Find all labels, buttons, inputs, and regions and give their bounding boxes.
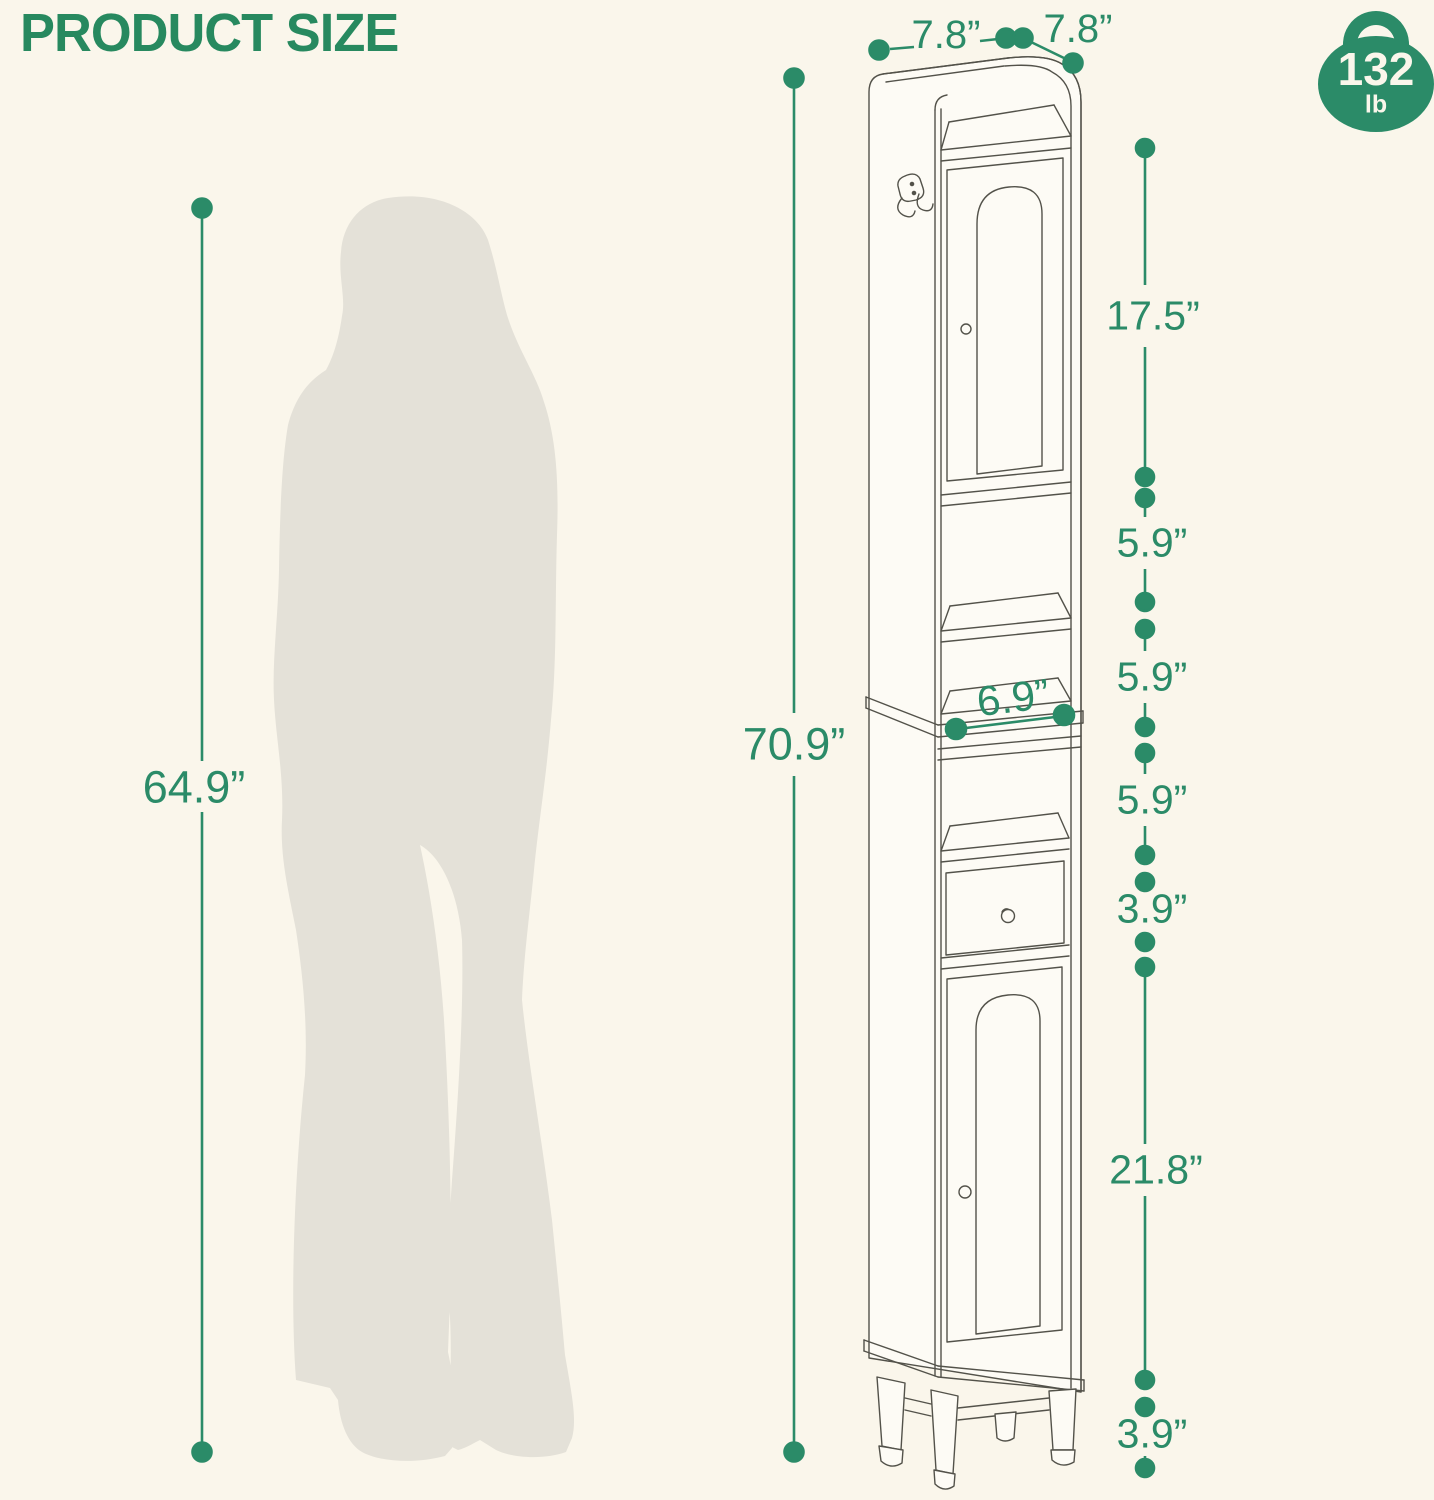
dim-upper-door-label: 17.5” bbox=[1106, 296, 1199, 337]
dim-top-depth-label: 7.8” bbox=[912, 15, 981, 55]
dim-overall-height-label: 70.9” bbox=[743, 722, 846, 767]
dim-legs-label: 3.9” bbox=[1117, 1414, 1188, 1455]
weight-capacity-value: 132 bbox=[1338, 46, 1415, 92]
dim-shelf-2-label: 5.9” bbox=[1117, 657, 1188, 698]
dim-drawer-label: 3.9” bbox=[1117, 889, 1188, 930]
dim-shelf-3-label: 5.9” bbox=[1117, 780, 1188, 821]
cabinet-illustration bbox=[864, 57, 1084, 1489]
diagram-canvas bbox=[0, 0, 1434, 1500]
weight-capacity-unit: lb bbox=[1365, 93, 1387, 118]
person-silhouette-icon bbox=[274, 196, 574, 1461]
dim-inner-width-label: 6.9” bbox=[975, 673, 1052, 724]
dim-shelf-1-label: 5.9” bbox=[1117, 523, 1188, 564]
dim-top-width-label: 7.8” bbox=[1044, 9, 1113, 49]
product-size-diagram: PRODUCT SIZE 132 lb 64.9” 70.9” 7.8” 7.8… bbox=[0, 0, 1434, 1500]
dim-person-height-label: 64.9” bbox=[143, 765, 246, 810]
cabinet-legs bbox=[877, 1377, 1076, 1489]
page-title: PRODUCT SIZE bbox=[20, 6, 398, 60]
dimension-line-person-height bbox=[193, 199, 212, 1462]
dim-lower-door-label: 21.8” bbox=[1109, 1150, 1202, 1191]
